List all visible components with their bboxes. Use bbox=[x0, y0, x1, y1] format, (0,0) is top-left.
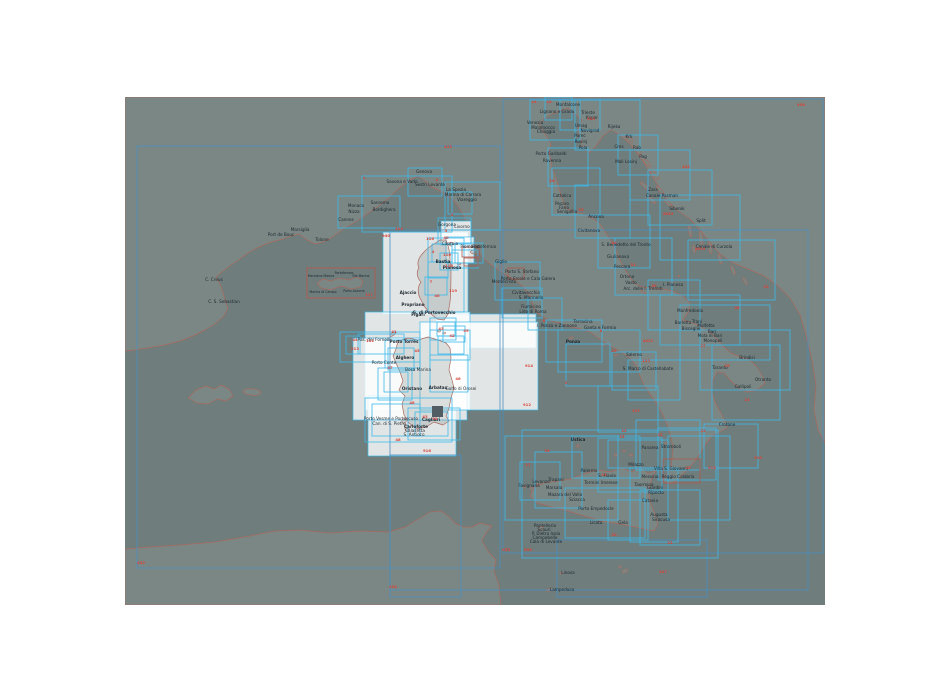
place-label: Sestri Levante bbox=[415, 182, 445, 187]
chart-number: 15 bbox=[619, 434, 625, 439]
place-label: Viareggio bbox=[457, 197, 477, 202]
place-label: Cannes bbox=[338, 217, 354, 222]
place-label: Ravenna bbox=[543, 158, 562, 163]
place-label: Pescara bbox=[614, 264, 631, 269]
chart-number: 45 bbox=[414, 348, 420, 353]
island bbox=[577, 445, 580, 447]
place-label: Manfredonia bbox=[677, 308, 704, 313]
place-label: Taormina bbox=[633, 482, 654, 487]
screenshot-canvas: Marciana MarinaPortoferraioRio MarinaMar… bbox=[0, 0, 950, 700]
place-label: Cattolica bbox=[553, 193, 572, 198]
place-label: S. Benedetto del Tronto bbox=[601, 242, 651, 247]
place-label: I. Pianosa bbox=[663, 282, 683, 287]
island bbox=[614, 354, 617, 356]
chart-number: 119 bbox=[449, 288, 457, 293]
place-label: Terracina bbox=[572, 319, 592, 324]
place-label: Chioggia bbox=[537, 129, 556, 134]
place-label: Mali Losinj bbox=[615, 159, 637, 164]
place-label: Porto Torres bbox=[390, 339, 419, 344]
place-label: Cres bbox=[614, 144, 623, 149]
place-label: Port de Bouc bbox=[268, 232, 295, 237]
place-label: Zara bbox=[648, 187, 658, 192]
place-label: Livorno bbox=[454, 224, 470, 229]
place-label: Riposto bbox=[648, 490, 664, 495]
chart-number: 48 bbox=[409, 400, 415, 405]
chart-number: 912 bbox=[523, 402, 531, 407]
chart-number: 13 bbox=[657, 432, 663, 437]
island bbox=[614, 454, 617, 456]
place-label: Tolone bbox=[314, 237, 329, 242]
chart-number: 104 bbox=[395, 226, 403, 231]
chart-number: 432 bbox=[137, 560, 145, 565]
place-label: Rijeka bbox=[608, 124, 621, 129]
place-label: Monaco bbox=[348, 203, 365, 208]
chart-number: 110 bbox=[443, 252, 451, 257]
place-label: Lignano e Grado bbox=[540, 109, 575, 114]
place-label: Monfalcone bbox=[556, 102, 581, 107]
chart-number: 111 bbox=[366, 338, 374, 343]
inset-place-label: Marciana Marina bbox=[308, 274, 334, 278]
chart-number: 2 bbox=[436, 177, 439, 182]
place-label: Palermo bbox=[581, 468, 598, 473]
chart-number: 7 bbox=[430, 279, 433, 284]
place-label: Sanremo bbox=[371, 200, 390, 205]
place-label: Bosa Marina bbox=[405, 367, 431, 372]
chart-number: 29 bbox=[763, 284, 769, 289]
chart-number: 35 bbox=[578, 207, 584, 212]
place-label: Panarea bbox=[642, 445, 659, 450]
chart-number: 918 bbox=[708, 465, 716, 470]
chart-number: 44 bbox=[352, 337, 358, 342]
inset-place-label: Porto Azzurro bbox=[343, 289, 364, 293]
chart-number: 25 bbox=[724, 363, 730, 368]
place-label: Gela bbox=[618, 520, 628, 525]
place-label: Porto Garibaldi bbox=[535, 151, 566, 156]
chart-number: 434 bbox=[389, 584, 397, 589]
place-label: Stromboli bbox=[661, 444, 681, 449]
chart-number: 41 bbox=[391, 329, 397, 334]
place-label: Ponza bbox=[566, 339, 580, 344]
chart-index-map-container: Marciana MarinaPortoferraioRio MarinaMar… bbox=[125, 97, 825, 605]
place-label: Bordighera bbox=[372, 207, 396, 212]
chart-number: 19 bbox=[601, 472, 607, 477]
chart-number: 923 bbox=[587, 116, 595, 121]
chart-number: 49 bbox=[463, 328, 469, 333]
place-label: Sciacca bbox=[569, 497, 585, 502]
place-label: Vasto bbox=[625, 280, 637, 285]
place-label: Nizza bbox=[348, 209, 360, 214]
chart-number: 6 bbox=[543, 318, 546, 323]
place-label: Golfo di Orosei bbox=[446, 386, 477, 391]
chart-number: 16 bbox=[544, 448, 550, 453]
chart-number: 12 bbox=[621, 428, 627, 433]
chart-number: 118 bbox=[445, 263, 453, 268]
chart-number: 23 bbox=[700, 428, 706, 433]
chart-number: 919 bbox=[754, 455, 762, 460]
chart-number: 42 bbox=[449, 333, 455, 338]
inset-place-label: Marina di Campo bbox=[309, 290, 336, 294]
place-label: S. Marco di Castellabate bbox=[623, 366, 674, 371]
chart-number: 939 bbox=[524, 547, 532, 552]
chart-number: 9 bbox=[565, 380, 568, 385]
place-label: Porto Conte bbox=[372, 360, 397, 365]
chart-number: 913 bbox=[351, 346, 359, 351]
chart-number: 4021 bbox=[643, 338, 654, 343]
place-label: Licata bbox=[590, 520, 603, 525]
place-label: Gallipoli bbox=[735, 384, 752, 389]
chart-number: 42 bbox=[432, 416, 438, 421]
place-label: Krk bbox=[626, 134, 633, 139]
place-label: Cala di Levante bbox=[530, 539, 563, 544]
inset-chart-number: 117 bbox=[365, 293, 373, 297]
island bbox=[644, 292, 646, 294]
place-label: S. Marinella bbox=[519, 295, 544, 300]
chart-number: 4024 bbox=[695, 246, 706, 251]
chart-number: 17 bbox=[525, 462, 531, 467]
chart-number: 4 bbox=[432, 249, 435, 254]
place-label: Brindisi bbox=[739, 355, 755, 360]
chart-number: 916 bbox=[423, 448, 431, 453]
place-label: Senigallia bbox=[557, 209, 578, 214]
place-label: Alghero bbox=[396, 355, 415, 360]
chart-number: 123 bbox=[642, 358, 650, 363]
place-label: Marsiglia bbox=[291, 227, 310, 232]
island bbox=[623, 450, 626, 452]
place-label: Porto S. Stefano bbox=[505, 269, 539, 274]
place-label: Lampedusa bbox=[550, 587, 575, 592]
place-label: Ustica bbox=[571, 437, 586, 442]
chart-number: 36 bbox=[549, 178, 555, 183]
place-label: Split bbox=[696, 218, 706, 223]
place-label: Ancona bbox=[588, 214, 604, 219]
chart-number: 27 bbox=[700, 343, 706, 348]
place-label: Milazzo bbox=[628, 462, 644, 467]
place-label: Pola bbox=[579, 145, 588, 150]
chart-number: 18 bbox=[546, 99, 552, 104]
island bbox=[678, 275, 680, 276]
place-label: Ortona bbox=[620, 274, 635, 279]
chart-number: 22 bbox=[685, 465, 691, 470]
place-label: Capraia bbox=[442, 241, 459, 246]
chart-number: 107 bbox=[632, 408, 640, 413]
island bbox=[629, 454, 632, 456]
chart-number: 14 bbox=[531, 99, 537, 104]
chart-number: 940 bbox=[382, 233, 390, 238]
place-label: Monopoli bbox=[704, 338, 723, 343]
chart-number: 28 bbox=[734, 305, 740, 310]
place-label: Trapani bbox=[547, 477, 563, 482]
chart-number: 46 bbox=[455, 376, 461, 381]
chart-number: 3 bbox=[451, 212, 454, 217]
place-label: Porto Empedocle bbox=[578, 506, 614, 511]
chart-number: 4023 bbox=[663, 211, 674, 216]
place-label: Portoferraio bbox=[472, 244, 497, 249]
place-label: C. S. Sebastian bbox=[208, 299, 240, 304]
place-label: Marsala bbox=[546, 485, 563, 490]
chart-number: 1 bbox=[363, 175, 366, 180]
place-label: Ajaccio bbox=[400, 290, 417, 295]
place-label: Catania bbox=[642, 498, 659, 503]
place-label: C. Creus bbox=[205, 277, 223, 282]
chart-number: 434 bbox=[682, 164, 690, 169]
chart-number: 5 bbox=[445, 228, 448, 233]
chart-number: 47 bbox=[387, 365, 393, 370]
chart-number: 43 bbox=[438, 326, 444, 331]
place-label: Messina bbox=[642, 474, 659, 479]
place-label: Arc. delle I. Tremiti bbox=[623, 286, 662, 291]
chart-number: 26 bbox=[611, 348, 617, 353]
place-label: Otranto bbox=[755, 377, 772, 382]
chart-number: 433 bbox=[444, 144, 452, 149]
place-label: Termini Imerese bbox=[583, 480, 618, 485]
place-label: I. Ponza e Zannone bbox=[537, 323, 577, 328]
place-label: Barletta bbox=[675, 320, 692, 325]
place-label: Rab bbox=[633, 145, 641, 150]
chart-number: 914 bbox=[525, 363, 533, 368]
place-label: Linosa bbox=[561, 570, 575, 575]
place-label: Salerno bbox=[626, 352, 642, 357]
inset-place-label: Rio Marina bbox=[353, 274, 370, 278]
place-label: Giulianova bbox=[607, 254, 630, 259]
chart-number: 46 bbox=[434, 293, 440, 298]
place-label: Lido di Roma bbox=[519, 309, 547, 314]
place-label: Porec bbox=[574, 133, 586, 138]
place-label: Levanzo bbox=[532, 479, 550, 484]
chart-number: 116 bbox=[426, 236, 434, 241]
chart-number: 48 bbox=[395, 437, 401, 442]
place-label: Reggio Calabria bbox=[662, 474, 695, 479]
place-label: Canale Pasman bbox=[646, 193, 679, 198]
place-label: Pas. dei Fornelli bbox=[358, 337, 391, 342]
chart-number: 8 bbox=[600, 328, 603, 333]
chart-number: 34 bbox=[611, 240, 617, 245]
chart-number: 20 bbox=[611, 532, 617, 537]
chart-number: 436 bbox=[797, 102, 805, 107]
chart-number: 31 bbox=[630, 262, 636, 267]
place-label: Oristano bbox=[402, 386, 422, 391]
place-label: Giglio bbox=[495, 259, 507, 264]
place-label: Porto Ercole e Cala Galera bbox=[501, 276, 556, 281]
place-label: G. di Portovecchio bbox=[412, 310, 455, 315]
chart-number: 21 bbox=[667, 540, 673, 545]
place-label: Molfetta bbox=[697, 323, 715, 328]
place-label: Siracusa bbox=[652, 517, 670, 522]
place-label: Savona e Vado bbox=[386, 179, 417, 184]
chart-number: 447 bbox=[659, 569, 667, 574]
place-label: Civitanova bbox=[578, 228, 601, 233]
place-label: Pag bbox=[639, 154, 647, 159]
place-label: S. Antioco bbox=[403, 432, 425, 437]
place-label: Villa S. Giovanni bbox=[654, 466, 688, 471]
inset-place-label: Portoferraio bbox=[335, 271, 354, 275]
place-label: Propriano bbox=[401, 302, 424, 307]
chart-number: 435 bbox=[502, 547, 510, 552]
chart-number: 24 bbox=[744, 397, 750, 402]
chart-number: 30 bbox=[651, 283, 657, 288]
chart-number: 40 bbox=[443, 235, 449, 240]
chart-number: 43 bbox=[422, 414, 428, 419]
place-label: Genova bbox=[416, 169, 433, 174]
place-label: Rovinj bbox=[575, 139, 588, 144]
place-label: Can. di S. Pietro bbox=[372, 421, 406, 426]
place-label: Crotone bbox=[719, 422, 736, 427]
chart-index-map[interactable]: Marciana MarinaPortoferraioRio MarinaMar… bbox=[125, 97, 825, 605]
